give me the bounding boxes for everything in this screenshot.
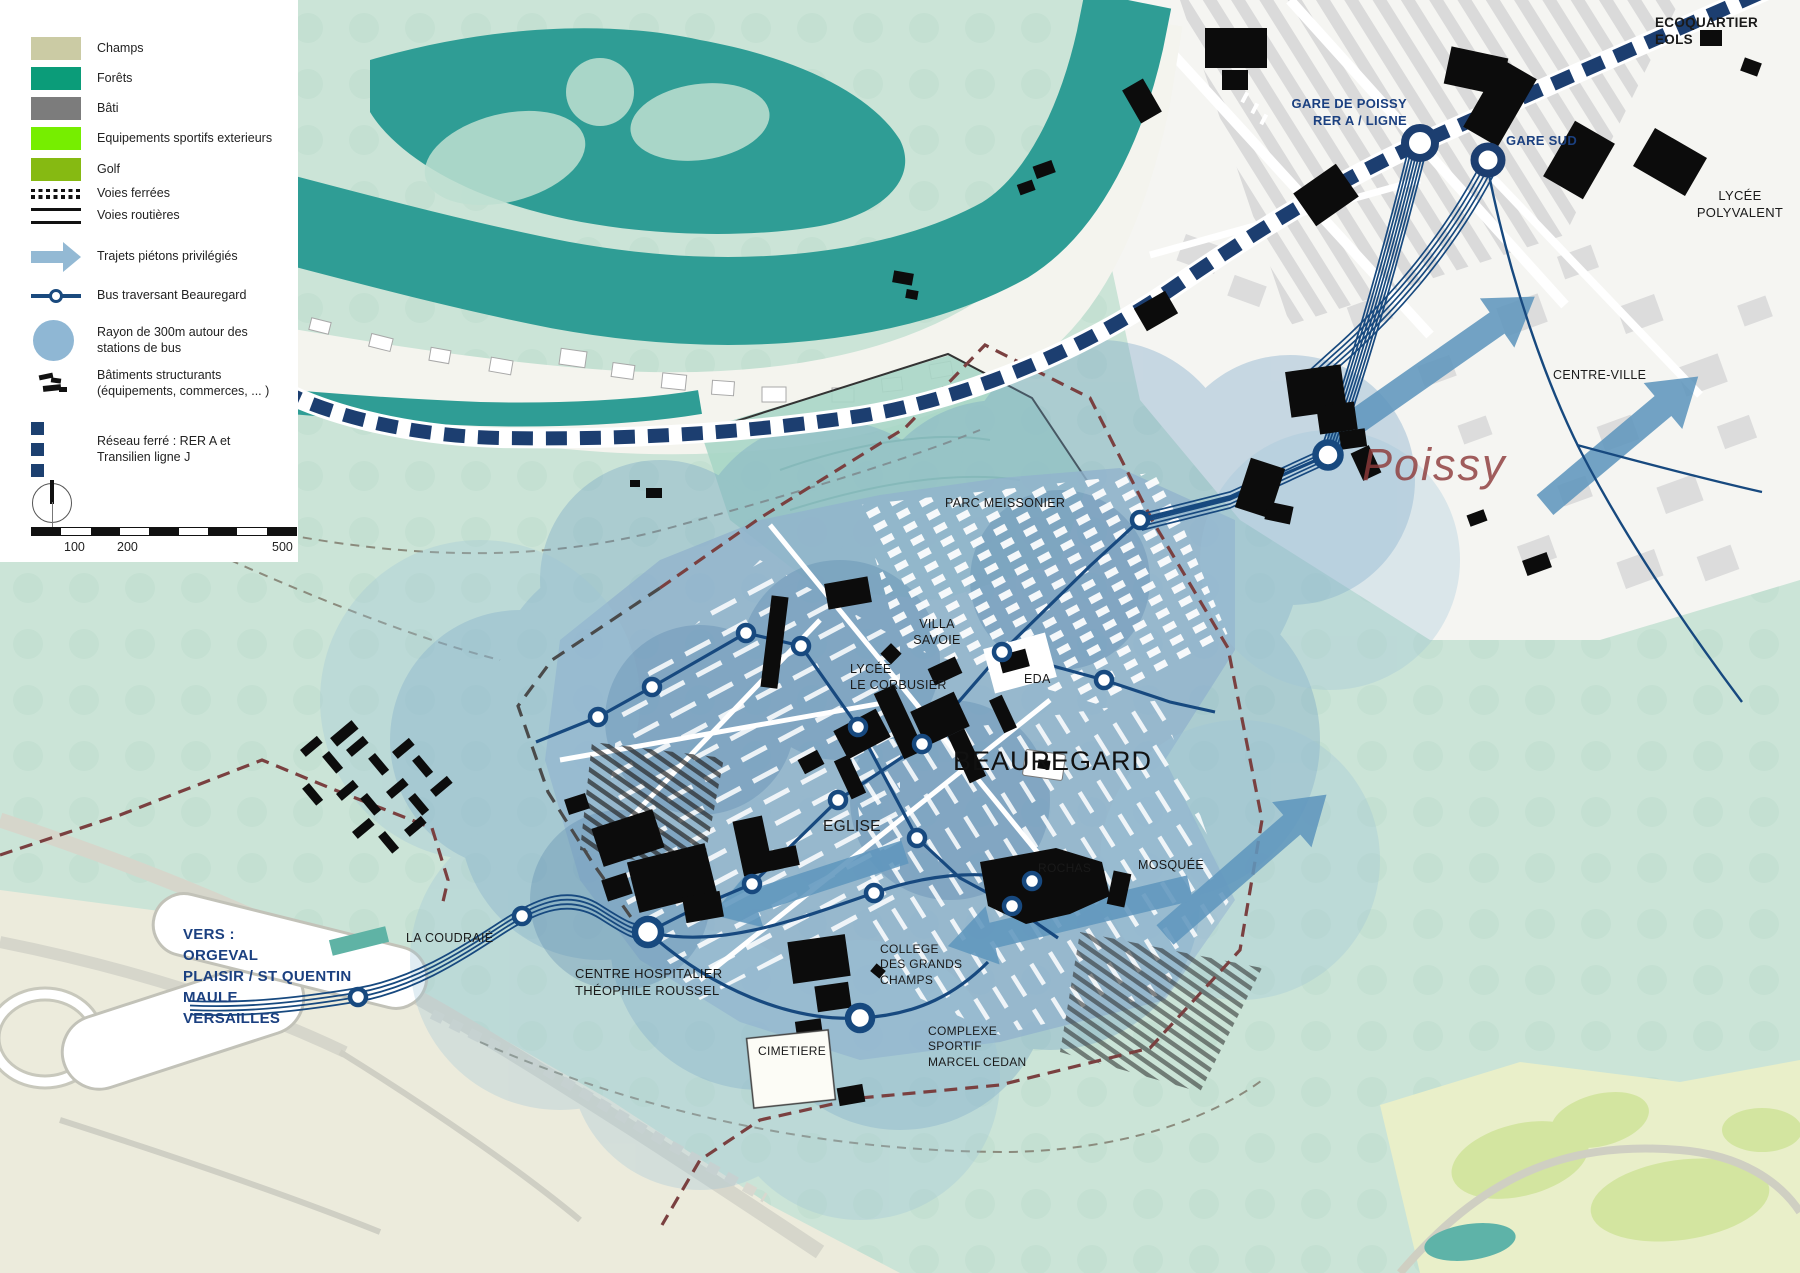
legend-item-sportifs: Equipements sportifs exterieurs: [31, 127, 287, 150]
label-gare-de-poissy: GARE DE POISSY RER A / LIGNE: [1255, 96, 1407, 129]
rer-squares-icon: [31, 422, 81, 477]
label-lycee-polyvalent: LYCÉE POLYVALENT: [1688, 188, 1792, 221]
scale-bar: [31, 527, 297, 536]
label-mosquee: MOSQUÉE: [1138, 857, 1204, 873]
champs-swatch: [31, 37, 81, 60]
label-la-coudraie: LA COUDRAIÉ: [406, 930, 493, 946]
label-poissy: Poissy: [1362, 436, 1507, 494]
bati-swatch: [31, 97, 81, 120]
legend-item-golf: Golf: [31, 158, 287, 181]
radius-circle-icon: [31, 320, 81, 361]
map-canvas: GARE DE POISSY RER A / LIGNE GARE SUD EC…: [0, 0, 1800, 1273]
label-lycee-corbusier: LYCÉE LE CORBUSIER: [850, 661, 947, 693]
pedestrian-arrow-icon: [31, 242, 81, 272]
scale-100: 100: [64, 540, 85, 554]
legend-item-voies-routieres: Voies routières: [31, 208, 287, 224]
compass-icon: [32, 483, 72, 523]
label-rochas: ROCHAS: [1038, 861, 1091, 876]
scale-200: 200: [117, 540, 138, 554]
sportifs-swatch: [31, 127, 81, 150]
forets-swatch: [31, 67, 81, 90]
label-vers-destinations: VERS : ORGEVAL PLAISIR / ST QUENTIN MAUL…: [183, 924, 352, 1029]
label-cimetiere: CIMETIERE: [758, 1044, 826, 1059]
legend-item-forets: Forêts: [31, 67, 287, 90]
buildings-icon: [31, 372, 81, 396]
label-ecoquartier-eols: ECOQUARTIER EOLS: [1655, 14, 1758, 49]
bus-line-icon: [31, 289, 81, 303]
legend-item-voies-ferrees: Voies ferrées: [31, 186, 287, 202]
label-eda: EDA: [1024, 671, 1051, 687]
label-centre-ville: CENTRE-VILLE: [1553, 367, 1646, 383]
label-villa-savoie: VILLA SAVOIE: [898, 616, 976, 648]
legend-item-bus: Bus traversant Beauregard: [31, 288, 287, 304]
label-centre-hospitalier: CENTRE HOSPITALIER THÉOPHILE ROUSSEL: [575, 966, 722, 999]
legend-panel: Champs Forêts Bâti Equipements sportifs …: [0, 0, 298, 562]
legend-item-reseau-ferre: Réseau ferré : RER A et Transilien ligne…: [31, 422, 287, 477]
legend-item-batiments: Bâtiments structurants (équipements, com…: [31, 368, 287, 399]
scale-500: 500: [272, 540, 293, 554]
legend-item-rayon: Rayon de 300m autour des stations de bus: [31, 320, 287, 361]
label-gare-sud: GARE SUD: [1506, 133, 1577, 150]
label-beauregard: BEAUREGARD: [953, 744, 1152, 779]
label-eglise: EGLISE: [823, 817, 881, 837]
golf-swatch: [31, 158, 81, 181]
legend-item-champs: Champs: [31, 37, 287, 60]
label-complexe-sportif: COMPLEXE SPORTIF MARCEL CEDAN: [928, 1024, 1027, 1070]
railway-icon: [31, 189, 81, 199]
legend-item-trajets-pietons: Trajets piétons privilégiés: [31, 242, 287, 272]
label-college-grands-champs: COLLEGE DES GRANDS CHAMPS: [880, 942, 962, 988]
label-parc-meissonier: PARC MEISSONIER: [945, 495, 1065, 511]
road-icon: [31, 208, 81, 224]
cimetiere-area: [747, 1030, 836, 1108]
legend-item-bati: Bâti: [31, 97, 287, 120]
